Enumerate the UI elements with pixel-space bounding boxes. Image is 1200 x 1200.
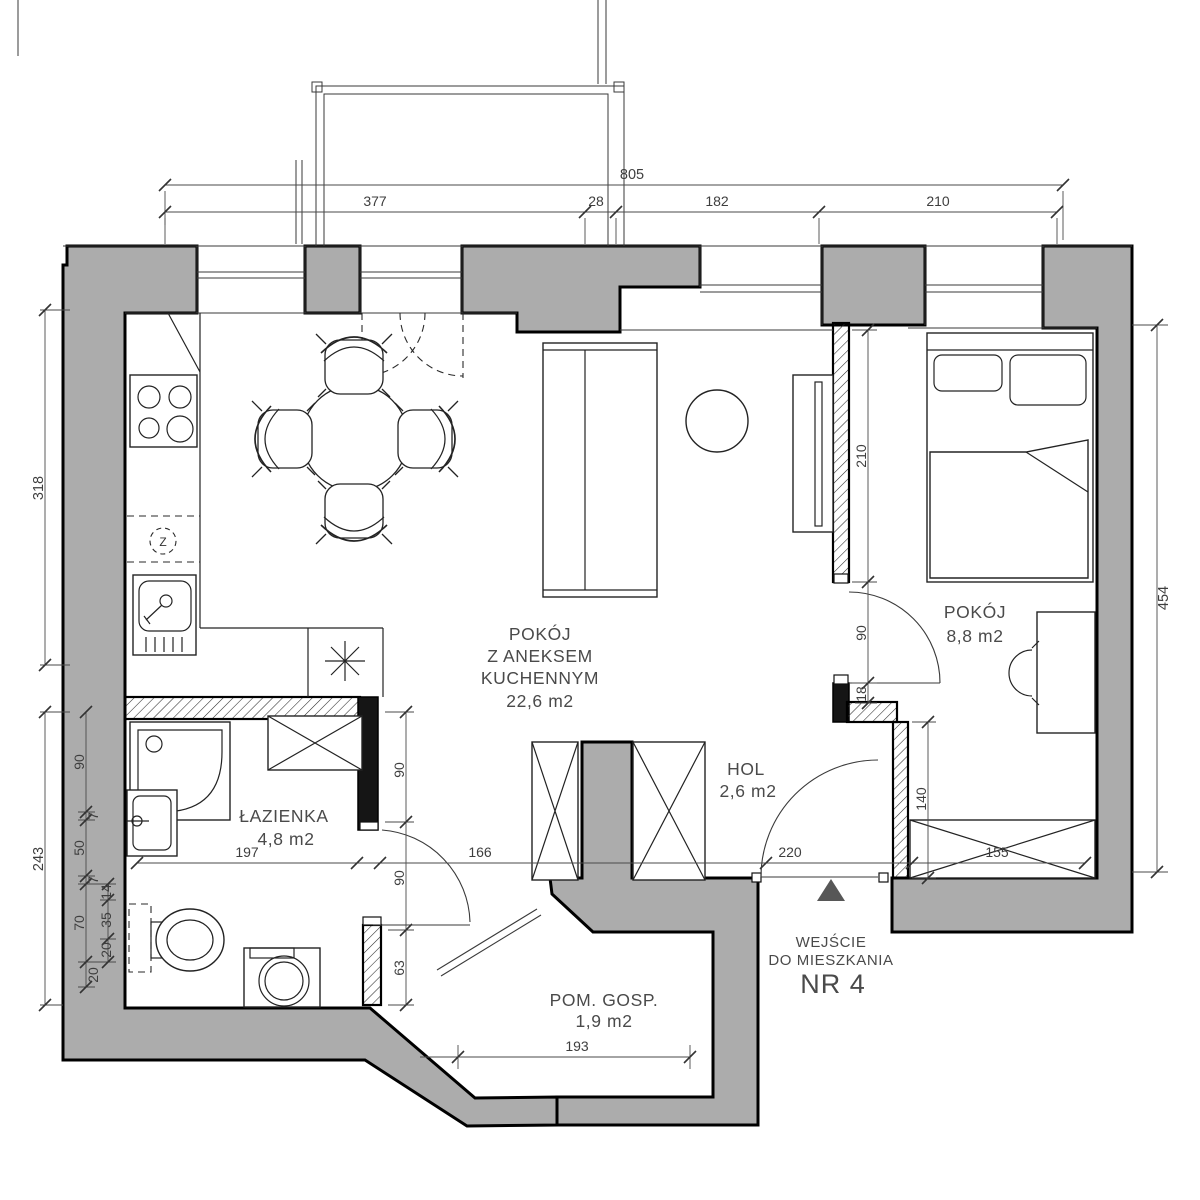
balcony-door-swing-right (400, 313, 463, 376)
svg-text:20: 20 (85, 967, 101, 983)
svg-text:182: 182 (705, 193, 729, 209)
svg-text:DO MIESZKANIA: DO MIESZKANIA (768, 952, 893, 969)
wardrobe-bathroom (268, 716, 362, 770)
svg-text:318: 318 (31, 476, 47, 500)
washing-machine (244, 948, 320, 1007)
svg-text:7: 7 (85, 812, 101, 820)
svg-text:50: 50 (71, 840, 87, 856)
side-table (686, 390, 748, 452)
window-kitchen (197, 246, 305, 313)
stove (130, 375, 197, 447)
svg-text:210: 210 (926, 193, 950, 209)
svg-text:8,8 m2: 8,8 m2 (946, 626, 1003, 646)
svg-text:166: 166 (468, 844, 492, 860)
svg-text:2,6 m2: 2,6 m2 (719, 781, 776, 801)
boiler: Z (150, 528, 176, 554)
riser-lines (296, 0, 606, 244)
svg-text:220: 220 (778, 844, 802, 860)
wall-bathroom-stub (363, 925, 381, 1005)
door-utility (437, 909, 541, 976)
dim-utility-193: 193 (420, 1038, 696, 1069)
svg-text:Z ANEKSEM: Z ANEKSEM (487, 646, 593, 666)
sofa (543, 343, 657, 597)
svg-text:20: 20 (98, 942, 114, 958)
svg-text:63: 63 (391, 960, 407, 976)
toilet (129, 904, 224, 972)
room-label-hol: HOL 2,6 m2 (719, 759, 776, 801)
kitchen-sink (133, 575, 196, 655)
wall-hol-bedroom-h (847, 702, 897, 722)
svg-text:ŁAZIENKA: ŁAZIENKA (239, 806, 328, 826)
bed (927, 333, 1093, 582)
dim-partition-chain: 210 90 18 (852, 324, 877, 709)
room-label-utility: POM. GOSP. 1,9 m2 (550, 990, 659, 1031)
wall-pillar-2 (305, 246, 360, 313)
dim-left-subchain: 14 35 20 (98, 878, 116, 968)
svg-text:POM. GOSP.: POM. GOSP. (550, 990, 659, 1010)
dim-right-454: 454 (1132, 319, 1172, 878)
svg-text:454: 454 (1156, 586, 1172, 610)
entrance-marker: WEJŚCIE DO MIESZKANIA NR 4 (768, 879, 893, 999)
door-bathroom (373, 830, 470, 925)
svg-text:90: 90 (853, 625, 869, 641)
svg-text:377: 377 (363, 193, 387, 209)
dim-bath-chain: 90 90 63 (385, 706, 414, 1011)
svg-text:KUCHENNYM: KUCHENNYM (481, 668, 599, 688)
svg-text:805: 805 (620, 167, 644, 183)
svg-text:197: 197 (235, 844, 259, 860)
svg-text:HOL: HOL (727, 759, 765, 779)
svg-text:155: 155 (985, 844, 1009, 860)
svg-text:7: 7 (85, 876, 101, 884)
svg-text:193: 193 (565, 1038, 589, 1054)
svg-text:28: 28 (588, 193, 604, 209)
svg-text:POKÓJ: POKÓJ (509, 623, 571, 644)
svg-text:210: 210 (853, 444, 869, 468)
window-bedroom (925, 246, 1043, 328)
floor-plan-svg: Z (0, 0, 1200, 1200)
wall-partition-bedroom (833, 323, 849, 582)
entrance-triangle-icon (817, 879, 845, 901)
wardrobe-hol-left (532, 742, 578, 880)
svg-text:70: 70 (71, 915, 87, 931)
window-living (700, 246, 822, 325)
dining-table (302, 385, 408, 491)
washbasin (127, 790, 177, 856)
ceiling-light-symbol (325, 641, 365, 681)
tv-cabinet (793, 375, 833, 532)
svg-text:140: 140 (913, 787, 929, 811)
wall-pillar-3 (462, 246, 700, 332)
room-label-bedroom: POKÓJ 8,8 m2 (944, 601, 1006, 646)
svg-text:90: 90 (391, 870, 407, 886)
room-label-living: POKÓJ Z ANEKSEM KUCHENNYM 22,6 m2 (481, 623, 599, 711)
room-label-bathroom: ŁAZIENKA 4,8 m2 (239, 806, 328, 849)
svg-text:243: 243 (31, 847, 47, 871)
svg-text:WEJŚCIE: WEJŚCIE (796, 933, 867, 951)
svg-text:1,9 m2: 1,9 m2 (575, 1011, 632, 1031)
wardrobe-hol-right (633, 742, 705, 880)
wall-hol-bedroom-v (893, 722, 908, 878)
svg-text:22,6 m2: 22,6 m2 (506, 691, 573, 711)
svg-text:90: 90 (71, 754, 87, 770)
dim-top-chain: 377 28 182 210 (159, 193, 1063, 244)
svg-text:14: 14 (98, 884, 114, 900)
svg-text:4,8 m2: 4,8 m2 (257, 829, 314, 849)
svg-text:NR 4: NR 4 (800, 969, 866, 999)
svg-text:18: 18 (853, 686, 869, 702)
svg-text:POKÓJ: POKÓJ (944, 601, 1006, 622)
desk (1009, 612, 1095, 733)
svg-text:35: 35 (98, 912, 114, 928)
svg-text:90: 90 (391, 762, 407, 778)
floor-plan-page: Z (0, 0, 1200, 1200)
balcony (296, 0, 624, 246)
boiler-symbol: Z (159, 535, 166, 549)
wall-pillar-4 (822, 246, 925, 325)
